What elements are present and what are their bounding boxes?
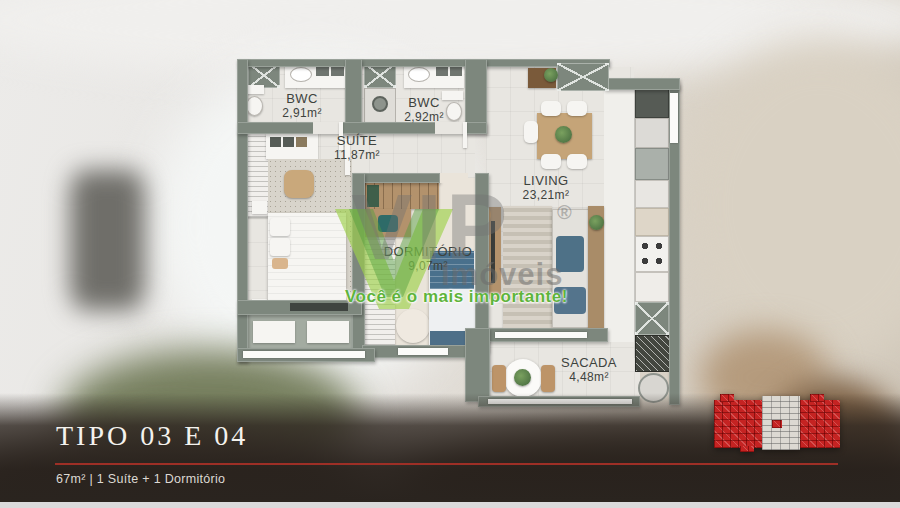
- wall: [604, 78, 680, 90]
- room-area: 4,48m²: [569, 370, 609, 385]
- wall: [465, 328, 490, 402]
- kitchen-prep: [635, 208, 669, 236]
- door-opening: [440, 173, 468, 183]
- keyplan-notch: [740, 446, 754, 452]
- ac-vent: [290, 303, 348, 311]
- room-label-suite: SUÍTE 11,87m²: [315, 133, 399, 163]
- window: [243, 351, 365, 358]
- floor-plan: BWC 2,91m² BWC 2,92m² SUÍTE 11,87m² LIVI…: [232, 55, 685, 405]
- keyplan-core-highlight: [772, 420, 782, 428]
- plant: [514, 369, 531, 386]
- keyplan-highlighted-units-right: [800, 400, 840, 448]
- room-area: 11,87m²: [334, 148, 380, 163]
- ac-unit: [307, 321, 349, 343]
- room-label-dormitorio: DORMITÓRIO 9,07m²: [378, 244, 478, 274]
- bottom-light-strip: [0, 502, 900, 508]
- dining-chair: [567, 154, 587, 169]
- plant: [544, 68, 558, 82]
- bg-picture-frame: [70, 170, 145, 310]
- kitchen-counter2: [635, 272, 669, 302]
- door-leaf: [463, 122, 467, 148]
- dorm-rug: [396, 309, 430, 343]
- pillow: [272, 258, 288, 269]
- ac-unit: [253, 321, 295, 343]
- pillow: [270, 238, 290, 256]
- kitchen-counter-sink: [635, 180, 669, 208]
- sink-basin: [290, 67, 312, 82]
- room-area: 2,91m²: [282, 106, 322, 121]
- room-label-sacada: SACADA 4,48m²: [546, 355, 632, 385]
- sofa-pillow: [556, 236, 584, 272]
- unit-specs: 67m² | 1 Suíte + 1 Dormitório: [56, 472, 225, 486]
- basket: [296, 137, 307, 147]
- basket: [283, 137, 294, 147]
- toilet-bowl: [246, 96, 263, 116]
- entry-door-box: [557, 63, 609, 91]
- grill: [635, 335, 671, 372]
- room-area: 9,07m²: [408, 259, 448, 274]
- shaft-box: [635, 302, 669, 335]
- accent-divider-line: [55, 463, 838, 465]
- dining-chair: [541, 154, 561, 169]
- wall: [237, 59, 610, 67]
- sofa-pillow: [554, 287, 586, 314]
- room-name: SACADA: [561, 355, 617, 370]
- bg-right-wall: [680, 40, 900, 370]
- suite-nightstand: [252, 201, 267, 214]
- building-key-plan: [714, 394, 840, 452]
- basket: [270, 137, 281, 147]
- living-rug: [503, 206, 552, 328]
- room-label-living: LIVING 23,21m²: [504, 173, 588, 203]
- keyplan-highlighted-units-left: [714, 400, 762, 448]
- room-name: DORMITÓRIO: [384, 244, 473, 259]
- wall: [352, 173, 365, 352]
- kitchen-sink-dark: [635, 89, 669, 118]
- room-name: BWC: [286, 91, 318, 106]
- dorm-plant-shelf: [367, 185, 379, 207]
- room-label-bwc1: BWC 2,91m²: [262, 91, 342, 121]
- sink-basin: [408, 67, 430, 82]
- marketing-slide: BWC 2,91m² BWC 2,92m² SUÍTE 11,87m² LIVI…: [0, 0, 900, 508]
- dining-chair: [524, 121, 538, 143]
- keyplan-notch: [810, 394, 824, 402]
- pillow: [270, 218, 290, 236]
- room-name: BWC: [408, 95, 440, 110]
- sacada-chair: [492, 365, 506, 392]
- tv: [491, 221, 495, 283]
- room-name: LIVING: [523, 173, 568, 188]
- unit-type-title: TIPO 03 E 04: [56, 420, 248, 452]
- plant: [555, 126, 572, 143]
- stove: [635, 236, 669, 272]
- keyplan-notch: [720, 394, 734, 402]
- suite-pouf: [284, 170, 314, 198]
- room-area: 2,92m²: [404, 110, 444, 125]
- service-window: [670, 93, 678, 143]
- room-name: SUÍTE: [337, 133, 377, 148]
- dorm-chair: [378, 215, 398, 232]
- wall: [237, 59, 248, 362]
- wall: [352, 173, 440, 183]
- dining-chair: [567, 101, 587, 116]
- window: [398, 348, 448, 355]
- sliding-door-glass: [495, 332, 587, 338]
- fridge: [635, 148, 669, 180]
- room-area: 23,21m²: [523, 188, 570, 203]
- plant: [589, 215, 604, 230]
- kitchen-marble: [635, 118, 669, 148]
- room-label-bwc2: BWC 2,92m²: [384, 95, 464, 125]
- dining-chair: [541, 101, 561, 116]
